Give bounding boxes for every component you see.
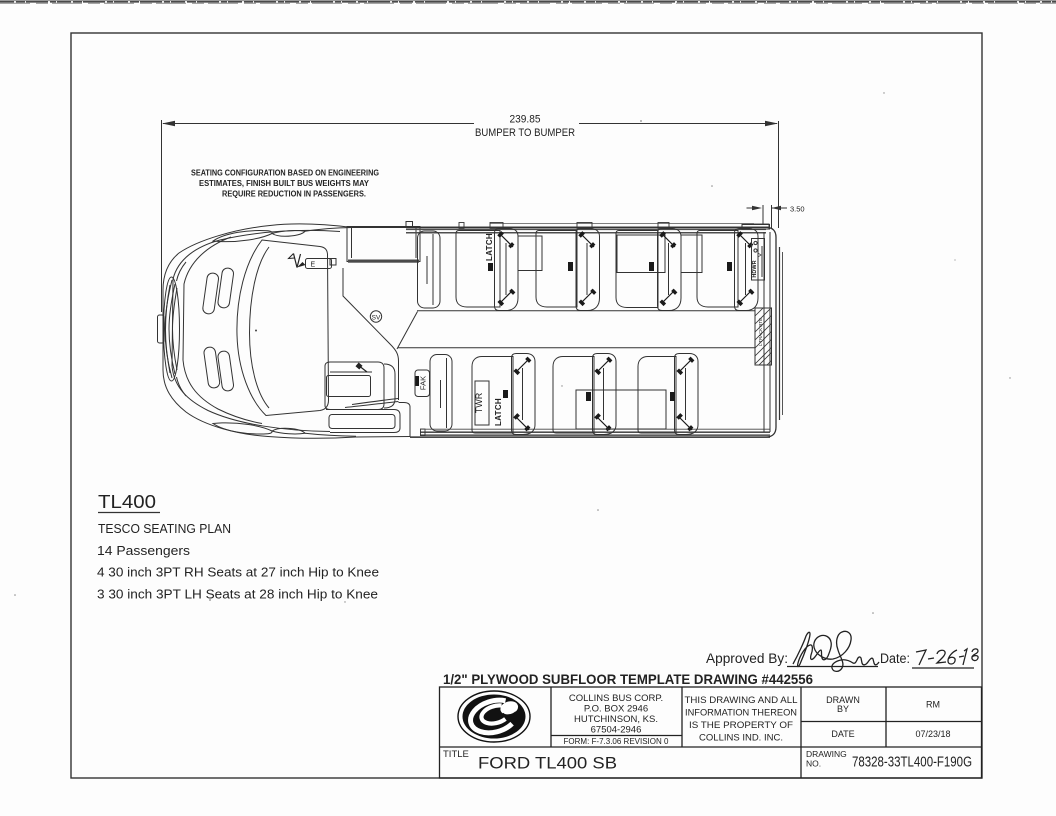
svg-text:NO.: NO. [806, 759, 821, 769]
svg-text:SV: SV [372, 315, 381, 322]
svg-text:239.85: 239.85 [510, 114, 541, 126]
svg-text:FORD TL400 SB: FORD TL400 SB [478, 754, 617, 773]
svg-text:THIS DRAWING AND ALL: THIS DRAWING AND ALL [685, 695, 798, 706]
svg-text:1/2" PLYWOOD SUBFLOOR TEMPLATE: 1/2" PLYWOOD SUBFLOOR TEMPLATE DRAWING #… [443, 672, 813, 687]
svg-text:TWR: TWR [474, 392, 484, 413]
svg-text:COLLINS BUS CORP.: COLLINS BUS CORP. [569, 693, 663, 704]
svg-text:REQUIRE REDUCTION IN PASSENGER: REQUIRE REDUCTION IN PASSENGERS. [222, 189, 366, 199]
svg-text:LATCH: LATCH [485, 233, 494, 261]
svg-text:BUMPER TO BUMPER: BUMPER TO BUMPER [475, 127, 575, 139]
svg-text:3.50: 3.50 [790, 205, 805, 214]
svg-text:COLLINS IND. INC.: COLLINS IND. INC. [699, 733, 783, 744]
svg-text:HUTCHINSON, KS.: HUTCHINSON, KS. [574, 714, 658, 725]
svg-text:07/23/18: 07/23/18 [915, 729, 950, 739]
svg-text:14 Passengers: 14 Passengers [97, 543, 191, 558]
svg-text:DATE: DATE [831, 729, 854, 739]
svg-text:Date:: Date: [880, 651, 910, 666]
svg-text:Approved By:: Approved By: [706, 651, 788, 666]
svg-text:RM: RM [926, 700, 940, 710]
svg-text:P.O. BOX 2946: P.O. BOX 2946 [584, 704, 648, 715]
svg-text:FAK: FAK [419, 376, 428, 390]
svg-text:IS THE PROPERTY OF: IS THE PROPERTY OF [689, 720, 793, 731]
svg-text:FORM: F-7.3.06 REVISION 0: FORM: F-7.3.06 REVISION 0 [564, 737, 669, 746]
svg-text:3 30 inch 3PT LH Seats at 28 i: 3 30 inch 3PT LH Seats at 28 inch Hip to… [97, 587, 378, 602]
svg-text:TL400: TL400 [98, 491, 156, 512]
svg-text:ESTIMATES, FINISH BUILT BUS WE: ESTIMATES, FINISH BUILT BUS WEIGHTS MAY [199, 178, 369, 188]
svg-text:LATCH: LATCH [494, 398, 503, 426]
svg-text:TESCO SEATING PLAN: TESCO SEATING PLAN [98, 521, 231, 536]
svg-text:TITLE: TITLE [443, 749, 469, 760]
svg-text:67504-2946: 67504-2946 [591, 725, 642, 736]
svg-text:4 30 inch 3PT RH Seats at 27 i: 4 30 inch 3PT RH Seats at 27 inch Hip to… [97, 565, 379, 580]
svg-text:SEATING CONFIGURATION BASED ON: SEATING CONFIGURATION BASED ON ENGINEERI… [191, 168, 379, 178]
svg-text:DRAWING: DRAWING [806, 749, 847, 759]
svg-text:78328-33TL400-F190G: 78328-33TL400-F190G [852, 754, 972, 771]
svg-text:BY: BY [837, 704, 849, 714]
svg-text:E: E [311, 262, 316, 269]
svg-text:INFORMATION THEREON: INFORMATION THEREON [685, 708, 797, 719]
svg-text:HDWR: HDWR [752, 260, 758, 277]
svg-text:L TRACK RTE: L TRACK RTE [758, 318, 763, 346]
